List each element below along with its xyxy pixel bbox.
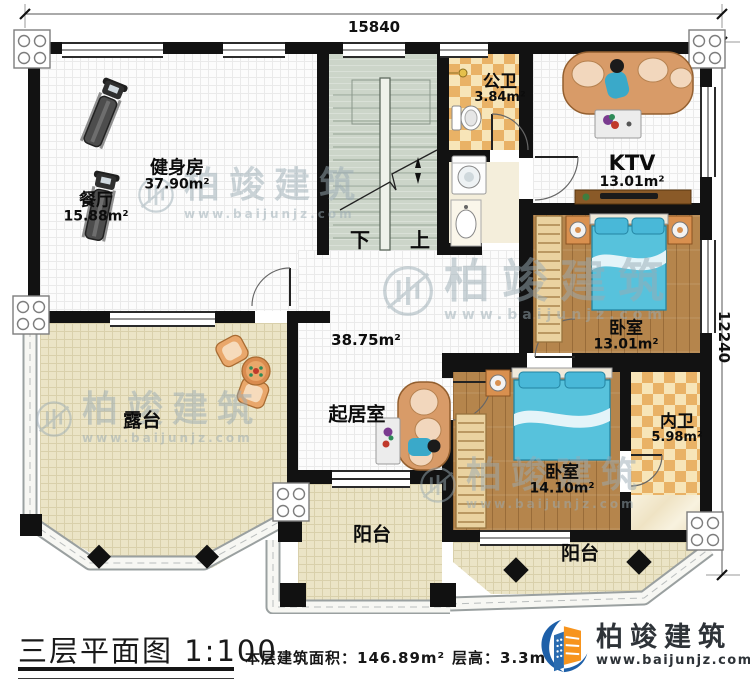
window (343, 42, 405, 58)
room-label-ktv: KTV 13.01m² (599, 152, 664, 190)
room-label-dining: 餐厅 15.88m² (63, 191, 128, 224)
window (332, 470, 410, 488)
wall (530, 203, 712, 215)
wall (28, 311, 110, 323)
room-label-gym: 健身房 37.90m² (144, 159, 209, 194)
wall (437, 243, 482, 255)
company-website: www.baijunjz.com (596, 653, 750, 668)
wash-nook-floor (449, 162, 519, 243)
right-dimension-value: 12240 (715, 311, 733, 363)
title-block: 三层平面图 1:100 本层建筑面积：146.89m² 层高：3.3m 柏竣建筑… (0, 614, 750, 685)
company-logo-text: 柏竣建筑 www.baijunjz.com (596, 624, 750, 667)
room-label-terrace: 露台 (123, 411, 161, 432)
wall (572, 353, 712, 372)
window (440, 42, 488, 58)
wall (442, 353, 527, 372)
room-label-ensuite-bath: 内卫 5.98m² (651, 413, 702, 445)
wall (28, 42, 40, 323)
room-label-bedroom1: 卧室 13.01m² (593, 319, 658, 352)
plan-title: 三层平面图 1:100 (18, 628, 278, 670)
room-label-public-bath: 公卫 3.84m² (474, 73, 525, 105)
company-logo-icon (536, 617, 590, 675)
room-label-balcony-right: 阳台 (561, 544, 599, 565)
plan-title-text: 三层平面图 (18, 634, 173, 668)
terrace-floor (40, 323, 287, 573)
floor-area-item: 本层建筑面积：146.89m² (245, 647, 445, 668)
wall (570, 530, 712, 542)
wall (317, 42, 329, 255)
window (110, 311, 215, 327)
window (62, 42, 163, 58)
floor-height-item: 层高：3.3m (452, 647, 546, 668)
window (700, 240, 716, 333)
wall (437, 150, 490, 162)
wall (442, 530, 480, 542)
wall (437, 42, 449, 255)
floor-area-value: 146.89m² (357, 649, 445, 667)
top-dimension-value: 15840 (348, 18, 400, 36)
company-logo: 柏竣建筑 www.baijunjz.com (536, 617, 750, 675)
company-name: 柏竣建筑 (596, 624, 750, 652)
stairs-down-label: 下 (350, 230, 370, 252)
floor-height-label: 层高： (452, 649, 500, 667)
ensuite-bath-dry-floor (631, 495, 700, 530)
wall (215, 311, 255, 323)
room-area-living: 38.75m² (331, 332, 401, 348)
wall (519, 215, 533, 353)
window (480, 530, 570, 546)
plan-title-underline (18, 667, 234, 679)
room-label-balcony-left: 阳台 (353, 525, 391, 546)
wall (410, 470, 453, 484)
floor-plan-canvas: 柏竣建筑www.baijunjz.com 柏竣建筑www.baijunjz.co… (0, 0, 750, 685)
room-label-bedroom2: 卧室 14.10m² (529, 463, 594, 496)
wall (620, 492, 631, 532)
floor-area-label: 本层建筑面积： (245, 649, 357, 667)
wall (287, 311, 298, 484)
stairs-up-label: 上 (410, 230, 430, 252)
wall (442, 363, 453, 378)
window (223, 42, 285, 58)
wall (620, 363, 631, 451)
room-label-living: 起居室 (328, 405, 385, 426)
bedroom2-floor (453, 372, 620, 530)
staircase-floor (329, 53, 437, 255)
window (700, 87, 716, 177)
